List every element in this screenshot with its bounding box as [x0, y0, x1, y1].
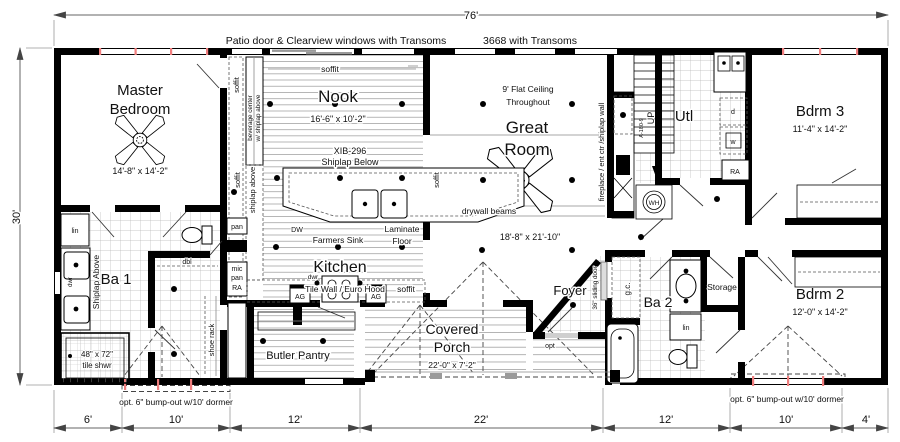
room-master-name1: Master	[117, 82, 163, 99]
utl-washer: w	[729, 139, 736, 146]
room-bdrm2-dims: 12'-0" x 14'-2"	[792, 307, 847, 317]
ba1-dbl: dbl	[182, 259, 192, 266]
room-utl-name: Utl	[675, 108, 693, 125]
kitchen-farmers-sink: Farmers Sink	[313, 235, 364, 245]
ba1-lin: lin	[71, 228, 78, 235]
soffit-nook-left: soffit	[232, 76, 241, 93]
stairs-code: A-180-9	[639, 118, 645, 138]
dim-seg-4: 4'	[862, 414, 870, 426]
room-kitchen-name: Kitchen	[313, 259, 366, 276]
bump-out-note-left: opt. 6" bump-out w/10' dormer	[119, 397, 233, 407]
ba1-dwr: dwr	[68, 277, 74, 287]
room-nook-dims: 16'-6" x 10'-2"	[310, 114, 365, 124]
floor-plan-page: 76' 30' 6' 10' 12' 22' 12' 10' 4' opt. 6…	[0, 0, 900, 442]
room-ba2-name: Ba 2	[644, 294, 673, 310]
kitchen-dwr: dwr	[308, 274, 319, 281]
floor-plan-drawing: 76' 30' 6' 10' 12' 22' 12' 10' 4' opt. 6…	[0, 0, 900, 442]
kitchen-pan2: pan	[231, 275, 243, 282]
stairs-up: UP	[646, 112, 656, 125]
kitchen-mic: mic	[232, 266, 243, 273]
dim-seg-10l: 10'	[169, 414, 183, 426]
kitchen-ag-right: AG	[371, 294, 381, 301]
utl-ra: RA	[730, 169, 740, 176]
room-great-name2: Room	[504, 140, 549, 159]
beverage-center-1: beverage center	[247, 95, 254, 141]
bedroom-closets	[795, 185, 883, 287]
room-bdrm2-name: Bdrm 2	[796, 286, 844, 303]
kitchen-tile-wall: Tile Wall / Euro Hood	[305, 284, 385, 294]
room-bdrm3-name: Bdrm 3	[796, 103, 844, 120]
water-heater: WH	[649, 200, 660, 207]
kitchen-ag-left: AG	[295, 294, 305, 301]
room-ba1-name: Ba 1	[101, 271, 132, 288]
room-master-name2: Bedroom	[110, 101, 171, 118]
kitchen-laminate-1: Laminate	[385, 224, 420, 234]
dim-seg-6: 6'	[84, 414, 92, 426]
room-storage-name: Storage	[707, 282, 737, 292]
dim-overall-height: 30'	[11, 210, 23, 224]
bump-out-note-right: opt. 6" bump-out w/10' dormer	[730, 394, 844, 404]
room-great-name1: Great	[506, 118, 549, 137]
room-master-dims: 14'-8" x 14'-2"	[112, 166, 167, 176]
island-note: Shiplap Below	[321, 157, 379, 167]
dim-seg-22: 22'	[474, 414, 488, 426]
porch-edge	[365, 370, 620, 382]
ba1-shiplap: Shiplap Above	[91, 255, 101, 310]
foyer-opt: opt	[545, 343, 555, 350]
room-bdrm3-dims: 11'-4" x 14'-2"	[793, 124, 848, 134]
room-butler-name: Butler Pantry	[266, 350, 330, 362]
ceiling-fan-master	[113, 113, 167, 167]
ba2-gc: g.c.	[623, 283, 632, 296]
great-beams: drywall beams	[462, 206, 516, 216]
kitchen-dw: DW	[291, 227, 303, 234]
fireplace-label: fireplace / ent ctr /shiplap wall	[597, 102, 606, 201]
room-porch-dims: 22'-0" x 7'-2"	[428, 360, 476, 370]
dim-seg-10r: 10'	[779, 414, 793, 426]
great-ceiling-2: Throughout	[506, 97, 550, 107]
ba1-shower-2: tile shwr	[82, 361, 112, 370]
soffit-kitchen-left: soffit	[233, 171, 242, 188]
room-nook-name: Nook	[318, 87, 358, 106]
utl-dryer: d	[731, 109, 735, 116]
room-great-dims: 18'-8" x 21'-10"	[500, 232, 560, 242]
room-porch-name1: Covered	[426, 321, 479, 337]
soffit-nook-top: soffit	[321, 64, 339, 74]
kitchen-laminate-2: Floor	[392, 236, 412, 246]
ba1-shoe-rack: shoe rack	[207, 323, 216, 356]
soffit-great-left: soffit	[432, 171, 441, 188]
foyer-sliding-door: 36" sliding door	[592, 266, 599, 309]
dim-seg-12l: 12'	[288, 414, 302, 426]
beverage-center-2: w/ shiplap above	[255, 94, 262, 142]
shiplap-above-kitchen: shiplap above	[248, 167, 257, 213]
note-patio-door: Patio door & Clearview windows with Tran…	[226, 35, 447, 47]
soffit-kitchen-right: soffit	[397, 284, 415, 294]
kitchen-ra: RA	[232, 285, 242, 292]
island-model: XIB-296	[334, 146, 367, 156]
ba2-lin: lin	[682, 325, 689, 332]
dim-overall-width: 76'	[464, 10, 478, 22]
ba1-shower-1: 48" x 72"	[81, 350, 113, 359]
note-3668: 3668 with Transoms	[483, 35, 577, 47]
room-foyer-name: Foyer	[553, 283, 587, 298]
great-ceiling-1: 9' Flat Ceiling	[502, 84, 554, 94]
kitchen-pan: pan	[231, 224, 243, 231]
room-porch-name2: Porch	[434, 339, 471, 355]
dim-seg-12r: 12'	[659, 414, 673, 426]
